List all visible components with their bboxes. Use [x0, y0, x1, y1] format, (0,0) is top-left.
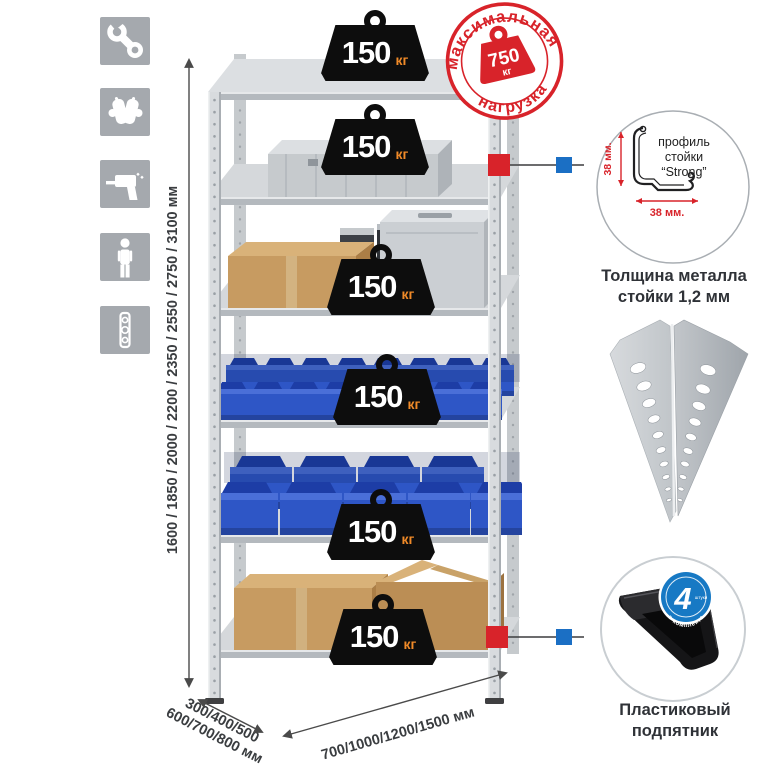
weight-icon: 150 кг	[320, 25, 430, 81]
weight-icon: 150 кг	[332, 369, 442, 425]
svg-text:“Strong”: “Strong”	[661, 165, 706, 179]
svg-text:стойки: стойки	[665, 150, 703, 164]
plastic-foot-left	[205, 698, 224, 704]
weight-icon: 150 кг	[320, 119, 430, 175]
product-infographic: 150 кг 150 кг 150 кг 150 кг 150 кг	[0, 0, 765, 765]
wrench-icon	[100, 17, 150, 65]
shelf-load-badge-1: 150 кг	[320, 10, 430, 84]
plastic-foot-diagram: 4 штуки в комплекте	[598, 554, 750, 704]
profile-label: профиль стойки “Strong”	[658, 135, 710, 179]
max-load-stamp: максимальная нагрузка 750 кг	[417, 0, 592, 143]
weight-icon: 150 кг	[326, 504, 436, 560]
shelf-load-badge-6: 150 кг	[328, 594, 438, 668]
plastic-foot-right	[485, 698, 504, 704]
shelf-load-badge-2: 150 кг	[320, 104, 430, 178]
profile-dim-vertical: 38 мм.	[602, 142, 614, 175]
profile-callout-blue-square	[556, 157, 572, 173]
height-dimension-label: 1600 / 1850 / 2000 / 2200 / 2350 / 2550 …	[165, 50, 181, 690]
foot-caption: Пластиковый подпятник	[600, 700, 750, 741]
profile-dim-horizontal: 38 мм.	[650, 207, 685, 219]
quantity-unit: штуки	[695, 595, 708, 600]
foot-callout-blue-square	[556, 629, 572, 645]
profile-caption: Толщина металла стойки 1,2 мм	[588, 266, 760, 307]
weight-icon: 150 кг	[328, 609, 438, 665]
shelf-load-badge-4: 150 кг	[332, 354, 442, 428]
spirit-level-icon	[100, 306, 150, 354]
shelf-load-badge-5: 150 кг	[326, 489, 436, 563]
shelf-load-badge-3: 150 кг	[326, 244, 436, 318]
gloves-icon	[100, 88, 150, 136]
person-height-icon	[100, 233, 150, 281]
drill-icon	[100, 160, 150, 208]
post-profile-diagram: 38 мм. 38 мм. профиль стойки “Strong”	[594, 108, 754, 266]
svg-text:профиль: профиль	[658, 135, 710, 149]
angle-post-illustration	[598, 306, 762, 536]
weight-icon: 150 кг	[326, 259, 436, 315]
quantity-value: 4	[673, 581, 691, 616]
